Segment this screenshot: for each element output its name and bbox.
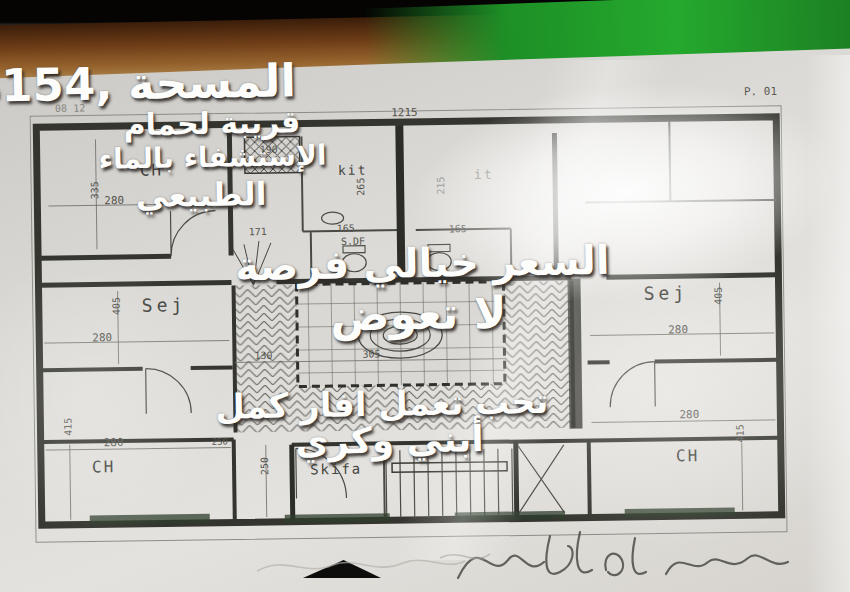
dim-sej-right-405: 405 [714, 287, 724, 305]
dim-sej-left-280: 280 [92, 332, 112, 343]
room-label-sej-left: Sej [142, 296, 187, 315]
photo-of-floor-plan: P. 01 08 12 1215 CH kit it S.DF Sej Sej … [0, 0, 850, 592]
faint-handwriting [245, 545, 475, 585]
room-label-ch-bottom-right: CH [676, 448, 699, 464]
dim-ch-tl-335: 335 [90, 181, 100, 199]
room-label-ch-bottom-left: CH [92, 459, 115, 475]
room-label-kitchen-right: it [474, 168, 494, 181]
handwritten-note [430, 518, 850, 592]
room-label-kitchen-left: kit [338, 164, 368, 177]
dim-kit-left-265: 265 [356, 178, 366, 196]
sheet-page-number: P. 01 [744, 86, 777, 97]
dim-sej-right-280: 280 [668, 324, 688, 335]
dim-hatch-box-190: 190 [260, 145, 278, 155]
room-label-bath-sdf: S.DF [341, 237, 365, 247]
room-label-ch-top-left: CH [140, 162, 163, 178]
dim-court-305: 305 [362, 349, 380, 359]
dim-hall-171: 171 [249, 227, 267, 237]
dim-kit-right-215: 215 [436, 176, 446, 194]
dim-bath-left-165: 165 [337, 224, 355, 234]
dim-ch-bl-280: 280 [104, 437, 124, 448]
sheet-header-note: 08 12 [55, 104, 85, 114]
dim-ch-br-280: 280 [679, 409, 699, 420]
dim-bath-right-165: 165 [449, 224, 467, 234]
floor-plan-linework [29, 90, 790, 548]
dim-ch-br-415: 415 [736, 424, 746, 442]
dim-ch-tl-280: 280 [104, 195, 124, 206]
room-label-sej-right: Sej [644, 284, 689, 303]
floor-plan-drawing: P. 01 08 12 1215 CH kit it S.DF Sej Sej … [29, 90, 790, 548]
dim-sej-left-405: 405 [112, 297, 122, 315]
dim-top-1215: 1215 [391, 107, 418, 118]
dim-ch-bl-415: 415 [63, 418, 73, 436]
room-label-skifa: Skifa [310, 462, 362, 477]
dim-skifa-250: 250 [212, 438, 228, 447]
dim-corridor-250: 250 [260, 457, 270, 475]
dim-gallery-130: 130 [254, 351, 272, 361]
